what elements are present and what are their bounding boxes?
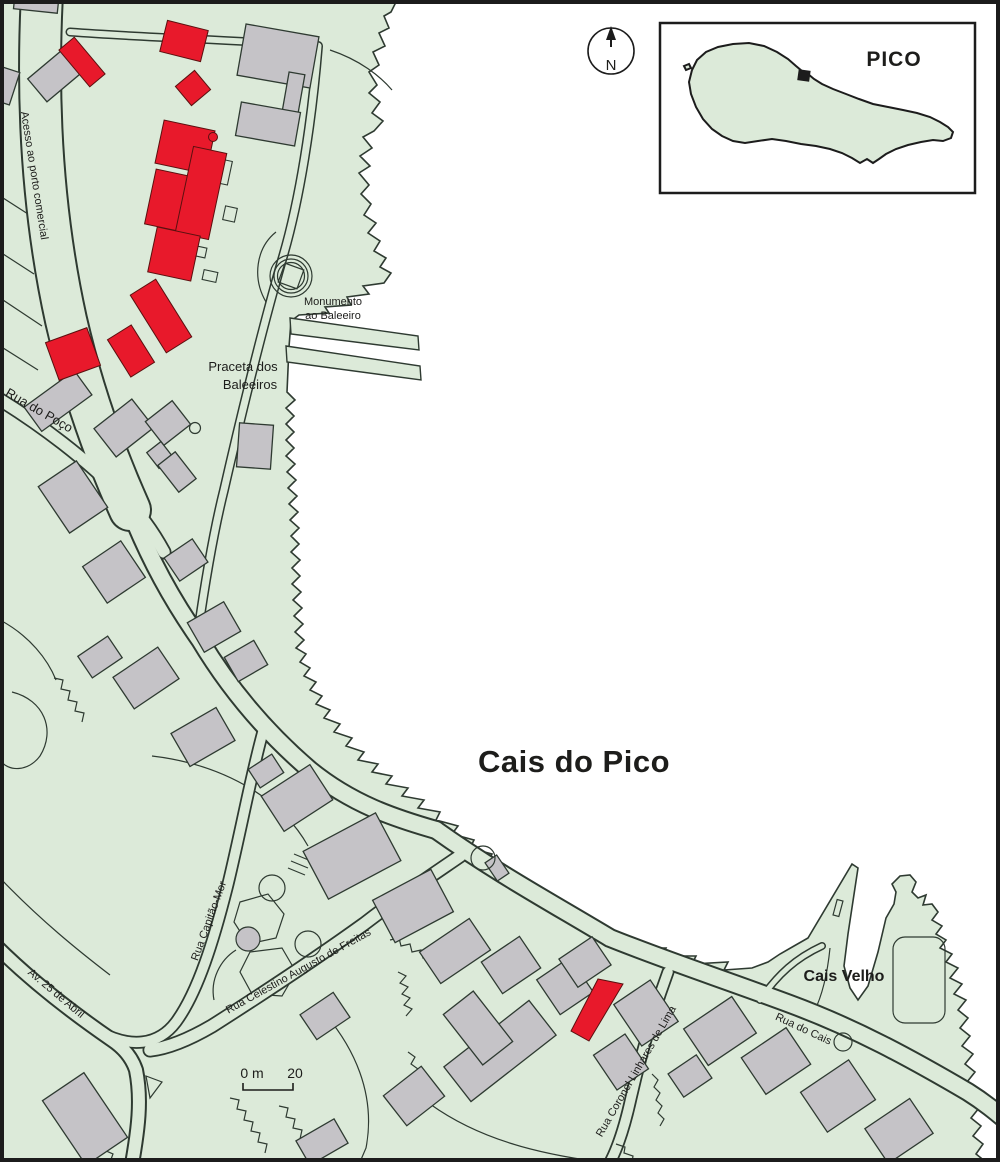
scale-zero-label: 0 m	[240, 1065, 263, 1081]
islet	[684, 64, 691, 70]
label-praceta-line2: Baleeiros	[223, 377, 278, 392]
inset-map: PICO	[660, 23, 975, 193]
label-monumento-line2: ao Baleeiro	[305, 310, 361, 322]
label-praceta-line1: Praceta dos	[208, 359, 278, 374]
label-monumento-line1: Monumento	[304, 296, 362, 308]
label-cais-velho: Cais Velho	[804, 968, 885, 985]
compass-north-label: N	[606, 57, 617, 74]
inset-island-label: PICO	[866, 48, 921, 71]
location-marker	[797, 69, 810, 82]
scale-twenty-label: 20	[287, 1065, 303, 1081]
label-cais-do-pico: Cais do Pico	[478, 744, 670, 779]
city-map-cais-do-pico: Acesso ao porto comercial Rua do Poço Pr…	[0, 0, 1000, 1162]
red-dot-marker	[209, 133, 218, 142]
